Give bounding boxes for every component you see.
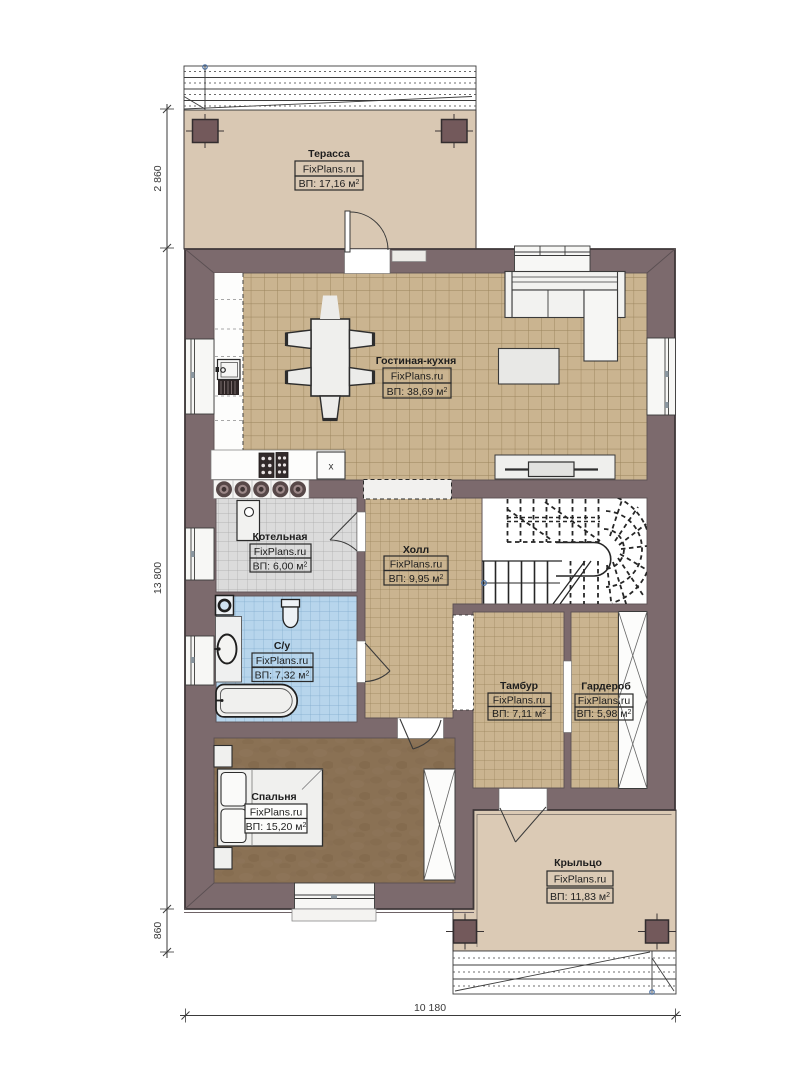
svg-text:ВП: 6,00 м2: ВП: 6,00 м2 [253,561,308,573]
svg-text:FixPlans.ru: FixPlans.ru [493,695,546,707]
svg-text:ВП: 38,69 м2: ВП: 38,69 м2 [387,386,448,398]
svg-text:ВП: 5,98 м2: ВП: 5,98 м2 [577,708,632,720]
svg-text:13 800: 13 800 [152,562,164,594]
svg-text:ВП: 17,16 м2: ВП: 17,16 м2 [299,178,360,190]
svg-text:FixPlans.ru: FixPlans.ru [303,164,356,176]
svg-text:Холл: Холл [403,544,429,556]
svg-text:FixPlans.ru: FixPlans.ru [578,695,631,707]
svg-text:2 860: 2 860 [152,165,164,191]
svg-text:Тамбур: Тамбур [500,680,538,692]
svg-text:FixPlans.ru: FixPlans.ru [250,807,303,819]
svg-text:ВП: 9,95 м2: ВП: 9,95 м2 [389,573,444,585]
svg-text:ВП: 7,32 м2: ВП: 7,32 м2 [255,670,310,682]
svg-text:FixPlans.ru: FixPlans.ru [554,874,607,886]
svg-text:ВП: 11,83 м2: ВП: 11,83 м2 [550,891,610,903]
svg-text:Крыльцо: Крыльцо [554,857,602,869]
svg-text:FixPlans.ru: FixPlans.ru [254,546,307,558]
svg-text:Котельная: Котельная [253,531,308,543]
svg-text:Гостиная-кухня: Гостиная-кухня [376,355,456,367]
svg-text:FixPlans.ru: FixPlans.ru [391,371,444,383]
svg-text:860: 860 [152,922,164,940]
svg-text:Спальня: Спальня [251,791,296,803]
svg-text:FixPlans.ru: FixPlans.ru [256,655,309,667]
svg-text:FixPlans.ru: FixPlans.ru [390,559,443,571]
svg-text:Терасса: Терасса [308,148,350,160]
svg-text:ВП: 7,11 м2: ВП: 7,11 м2 [492,708,546,720]
svg-text:С/у: С/у [274,640,291,652]
svg-text:Гардероб: Гардероб [581,681,631,693]
svg-text:10 180: 10 180 [414,1002,446,1014]
svg-text:x: x [329,462,334,473]
svg-text:ВП: 15,20 м2: ВП: 15,20 м2 [246,821,307,833]
